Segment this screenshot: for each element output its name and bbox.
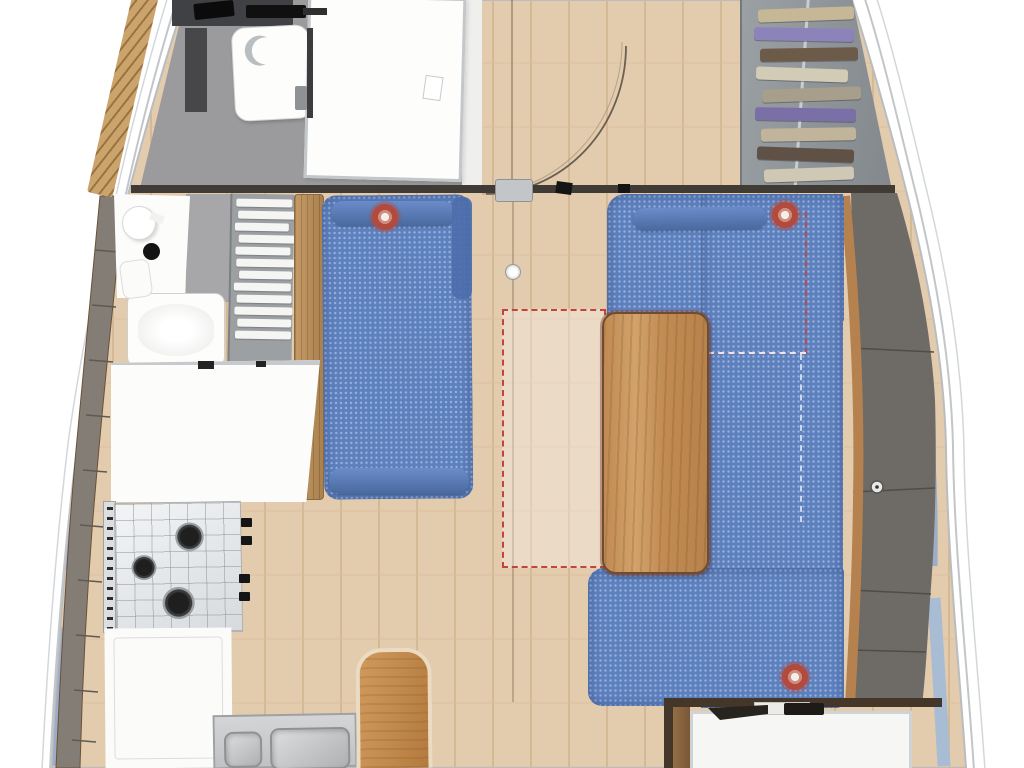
- shelf-slat: [238, 211, 296, 220]
- counter-latch: [256, 361, 266, 367]
- vanity-shelf-item: [246, 5, 306, 18]
- burner: [173, 521, 206, 554]
- shower-drain: [422, 75, 443, 101]
- speaker-ring-starboard-fwd: [767, 197, 803, 233]
- sink-bowl-small: [224, 731, 263, 768]
- shelf-slat: [239, 235, 296, 244]
- dish-shelf-unit: [228, 193, 295, 362]
- forward-centerline-seam: [511, 0, 513, 188]
- counter-latch: [198, 361, 214, 369]
- shelf-slat: [235, 331, 291, 340]
- stove-knob: [241, 518, 252, 527]
- folded-clothes-stack: [758, 6, 854, 22]
- container-jar: [119, 258, 154, 300]
- vanity-handle: [303, 8, 327, 15]
- floor-fitting: [505, 264, 521, 280]
- port-washbasin: [127, 293, 225, 367]
- aft-bulkhead-wall: [664, 698, 673, 768]
- shelf-slat: [236, 259, 294, 268]
- aft-door-jamb: [673, 707, 690, 768]
- stove-knob: [241, 536, 252, 545]
- head-mirror-panel: [185, 28, 207, 112]
- table-extension-dashed-outline: [502, 309, 606, 568]
- shelf-slat: [239, 271, 292, 280]
- galley-counter-main: [111, 360, 320, 502]
- shelf-slat: [237, 319, 291, 328]
- folded-clothes-stack: [754, 27, 854, 42]
- burner: [130, 553, 158, 581]
- salon-table: [602, 312, 709, 574]
- bulkhead-hinge: [555, 181, 573, 195]
- settee-pillow-bolster: [633, 206, 767, 231]
- port-floor-patch: [186, 194, 234, 302]
- cushion-button-center: [875, 485, 879, 489]
- shelf-slat: [235, 247, 290, 256]
- burner: [160, 585, 197, 622]
- galley-double-sink: [213, 713, 358, 768]
- coffee-cup: [143, 243, 160, 260]
- stove-knob: [239, 592, 250, 601]
- folded-clothes-stack: [760, 47, 858, 62]
- shelf-slat: [234, 307, 292, 316]
- folded-clothes-stack: [756, 66, 848, 82]
- shower-tray: [304, 0, 467, 182]
- speaker-ring-port: [367, 199, 403, 235]
- shelf-slat: [236, 199, 292, 208]
- port-berth-foot-bolster: [329, 468, 469, 494]
- folded-clothes-stack: [757, 146, 854, 162]
- toilet-bowl-icon: [244, 35, 276, 67]
- shelf-slat: [234, 283, 291, 292]
- bulkhead-hinge: [618, 184, 630, 193]
- cabin-door-latch: [495, 179, 533, 202]
- folded-clothes-stack: [762, 86, 861, 102]
- yacht-floor-plan: [0, 0, 1024, 768]
- berth-conversion-dashed-line: [708, 352, 806, 354]
- folded-clothes-stack: [764, 166, 854, 182]
- berth-conversion-dashed-line: [800, 354, 802, 522]
- shower-door-slot: [307, 28, 313, 118]
- stove-knob: [239, 574, 250, 583]
- berth-conversion-dashed-line: [805, 212, 807, 354]
- aft-reading-light: [784, 703, 824, 715]
- sink-bowl-large: [270, 727, 351, 768]
- shelf-slat: [237, 295, 292, 304]
- port-berth-backrest: [452, 197, 472, 299]
- speaker-ring-starboard-aft: [777, 659, 813, 695]
- companionway-bench: [355, 648, 432, 768]
- port-settee-berth: [322, 194, 474, 499]
- toilet-hinge: [295, 86, 307, 110]
- folded-clothes-stack: [755, 107, 856, 122]
- stove-three-burner: [114, 501, 243, 634]
- folded-clothes-stack: [761, 127, 856, 142]
- shelf-slat: [235, 223, 289, 232]
